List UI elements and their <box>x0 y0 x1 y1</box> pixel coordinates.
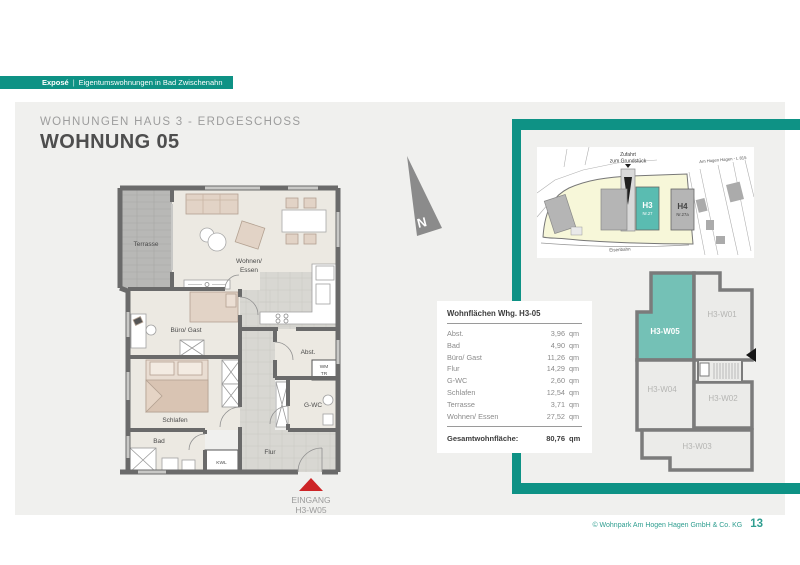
floorplan-drawing: Terrasse Wohnen/ Essen Büro/ Gast Abst. … <box>110 172 360 517</box>
row-value: 3,71 <box>535 400 565 409</box>
room-label-kwl: KWL <box>216 460 227 466</box>
header-badge: Exposé | Eigentumswohnungen in Bad Zwisc… <box>0 76 233 89</box>
keyplan-label-w05: H3-W05 <box>650 327 680 336</box>
frame-bar-bottom <box>512 483 800 494</box>
table-row: Abst. 3,96 qm <box>447 329 582 341</box>
entrance-label-1: EINGANG <box>291 495 330 505</box>
total-label: Gesamtwohnfläche: <box>447 434 535 443</box>
page-subtitle: WOHNUNGEN HAUS 3 - ERDGESCHOSS <box>40 116 301 128</box>
table-row: G-WC 2,60 qm <box>447 376 582 388</box>
keyplan-label-w02: H3-W02 <box>708 394 738 403</box>
area-table-rows: Abst. 3,96 qm Bad 4,90 qm Büro/ Gast 11,… <box>447 329 582 423</box>
row-value: 2,60 <box>535 376 565 385</box>
row-label: Terrasse <box>447 400 535 409</box>
page-footer: © Wohnpark Am Hogen Hagen GmbH & Co. KG … <box>592 518 763 530</box>
area-table-title: Wohnflächen Whg. H3-05 <box>447 309 582 324</box>
frame-bar-top <box>512 119 800 130</box>
table-row: Schlafen 12,54 qm <box>447 388 582 400</box>
room-label-abst: Abst. <box>301 349 316 356</box>
total-unit: qm <box>569 434 582 443</box>
row-unit: qm <box>569 376 582 385</box>
row-label: G-WC <box>447 376 535 385</box>
keyplan-unit-w02 <box>694 382 752 428</box>
row-unit: qm <box>569 412 582 421</box>
room-label-wohnen-1: Wohnen/ <box>236 258 262 265</box>
footer-page-number: 13 <box>750 518 763 530</box>
table-row: Bad 4,90 qm <box>447 341 582 353</box>
key-plan: H3-W05 H3-W01 H3-W04 H3-W02 H3-W03 <box>632 268 758 475</box>
total-value: 80,76 <box>535 434 565 443</box>
north-arrow: N <box>395 148 450 243</box>
keyplan-unit-w05 <box>637 273 694 360</box>
siteplan-h4: H4 <box>677 202 688 211</box>
badge-label: Exposé <box>42 78 69 87</box>
row-label: Bad <box>447 341 535 350</box>
table-row: Flur 14,29 qm <box>447 364 582 376</box>
row-unit: qm <box>569 388 582 397</box>
room-label-gwc: G-WC <box>304 402 322 409</box>
room-label-bad: Bad <box>153 438 165 445</box>
row-value: 14,29 <box>535 364 565 373</box>
room-label-buero: Büro/ Gast <box>170 327 201 334</box>
badge-text: Eigentumswohnungen in Bad Zwischenahn <box>79 78 223 87</box>
entrance-arrow-icon <box>299 478 323 491</box>
row-label: Büro/ Gast <box>447 353 535 362</box>
row-unit: qm <box>569 400 582 409</box>
row-label: Schlafen <box>447 388 535 397</box>
table-row: Terrasse 3,71 qm <box>447 400 582 412</box>
area-table: Wohnflächen Whg. H3-05 Abst. 3,96 qm Bad… <box>437 301 592 453</box>
site-plan: Zufahrt zum Grundstück Am Hogen Hagen - … <box>537 147 754 258</box>
row-label: Wohnen/ Essen <box>447 412 535 421</box>
row-unit: qm <box>569 341 582 350</box>
row-label: Abst. <box>447 329 535 338</box>
room-label-flur: Flur <box>264 449 276 456</box>
row-value: 4,90 <box>535 341 565 350</box>
room-label-tr: TR <box>321 371 328 377</box>
table-row: Büro/ Gast 11,26 qm <box>447 353 582 365</box>
row-value: 12,54 <box>535 388 565 397</box>
keyplan-label-w01: H3-W01 <box>707 310 737 319</box>
room-label-schlafen: Schlafen <box>162 417 188 424</box>
siteplan-zufahrt-2: zum Grundstück <box>610 159 647 165</box>
entrance-label-2: H3-W05 <box>295 505 326 515</box>
row-value: 11,26 <box>535 353 565 362</box>
siteplan-h4-nr: Nr.27a <box>676 212 689 217</box>
footer-copyright: © Wohnpark Am Hogen Hagen GmbH & Co. KG <box>592 522 742 529</box>
room-label-wohnen-2: Essen <box>240 267 258 274</box>
row-label: Flur <box>447 364 535 373</box>
badge-separator: | <box>73 78 75 87</box>
page-title: WOHNUNG 05 <box>40 131 180 154</box>
row-unit: qm <box>569 353 582 362</box>
row-value: 3,96 <box>535 329 565 338</box>
table-total-row: Gesamtwohnfläche: 80,76 qm <box>447 426 582 443</box>
siteplan-h3-nr: Nr.27 <box>642 211 653 216</box>
keyplan-unit-w04 <box>637 360 694 430</box>
keyplan-stairs <box>698 360 742 382</box>
row-unit: qm <box>569 364 582 373</box>
row-value: 27,52 <box>535 412 565 421</box>
keyplan-label-w03: H3-W03 <box>682 442 712 451</box>
table-row: Wohnen/ Essen 27,52 qm <box>447 412 582 424</box>
room-label-terrasse: Terrasse <box>134 241 159 248</box>
siteplan-h3: H3 <box>642 201 653 210</box>
keyplan-label-w04: H3-W04 <box>647 385 677 394</box>
terrace-floor <box>120 188 172 288</box>
room-label-wm: WM <box>320 364 329 370</box>
row-unit: qm <box>569 329 582 338</box>
siteplan-zufahrt-1: Zufahrt <box>620 152 636 158</box>
